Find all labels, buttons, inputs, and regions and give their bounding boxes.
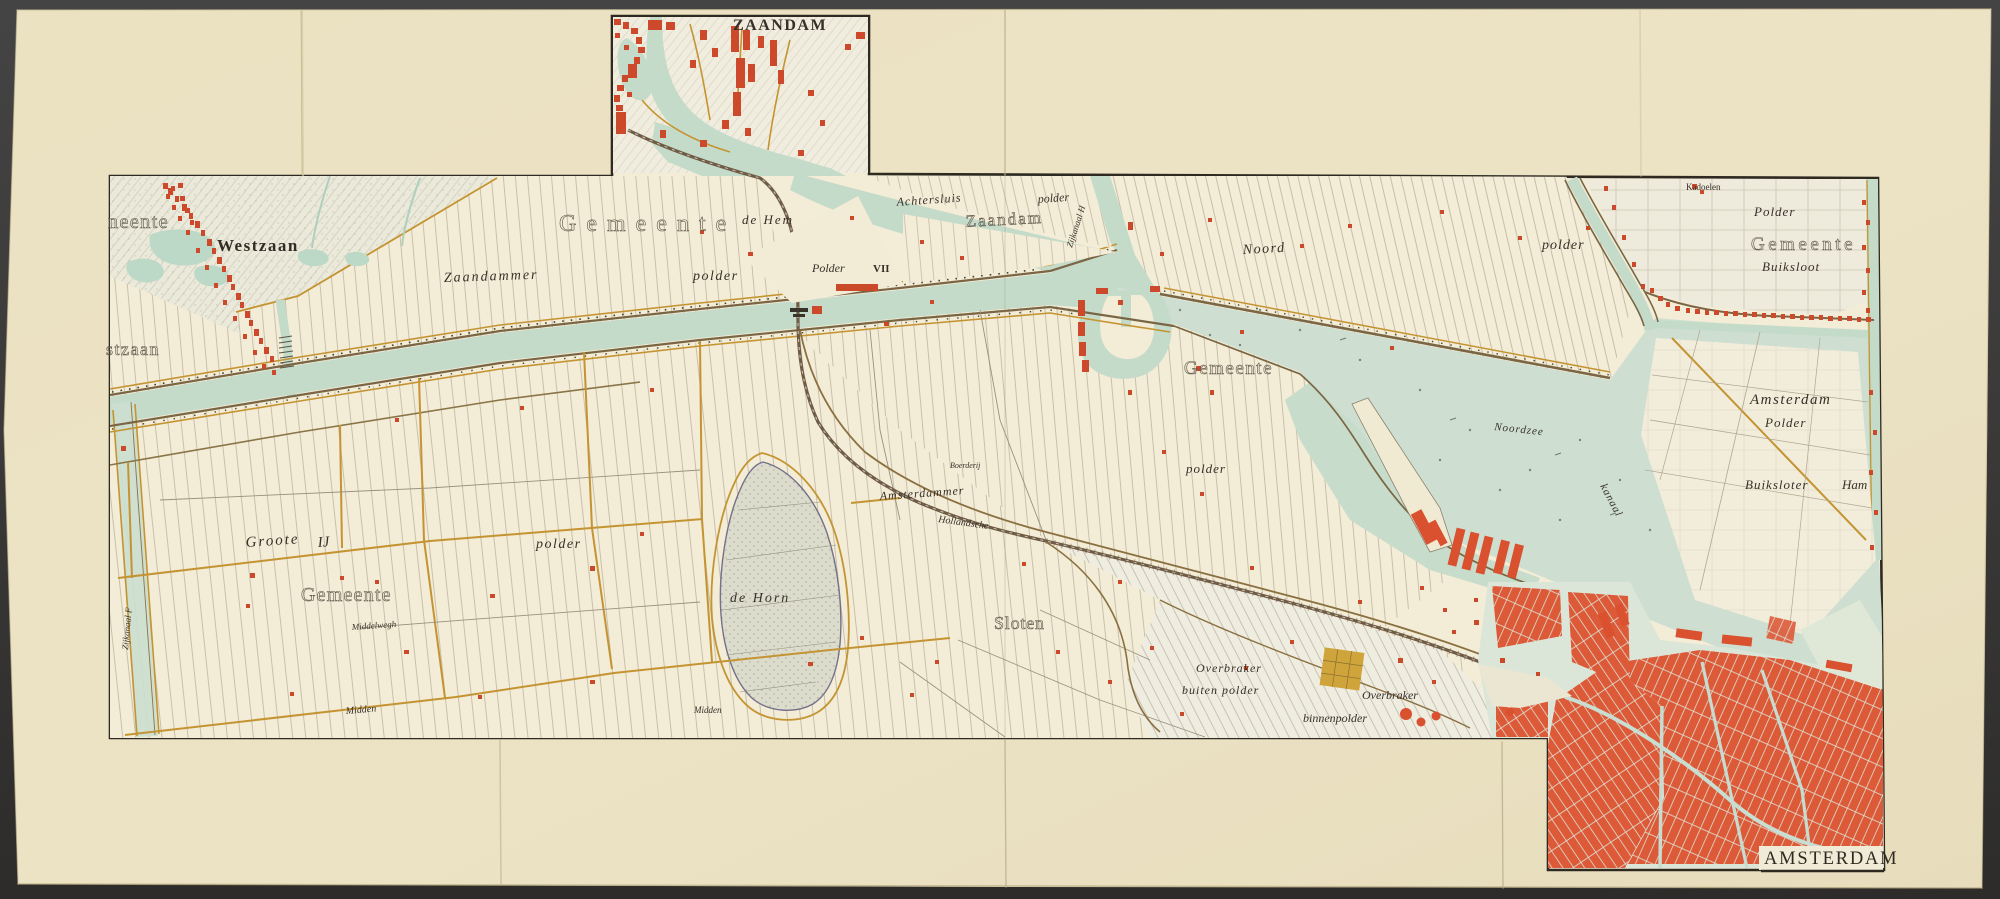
svg-text:Noord: Noord [1241,241,1286,258]
svg-text:polder: polder [1036,190,1070,206]
svg-text:Amsterdam: Amsterdam [1749,392,1831,408]
svg-text:Polder: Polder [811,261,845,275]
svg-text:Gemeente: Gemeente [301,584,392,606]
svg-text:polder: polder [1541,238,1585,253]
svg-text:Westzaan: Westzaan [217,236,299,255]
svg-text:de Hem: de Hem [742,212,794,227]
svg-text:buiten polder: buiten polder [1182,683,1259,697]
svg-text:Gemeente: Gemeente [559,211,736,237]
svg-text:Gemeente: Gemeente [1751,234,1856,255]
svg-text:Buiksloot: Buiksloot [1762,259,1820,274]
svg-text:Ham: Ham [1841,477,1867,492]
svg-text:Polder: Polder [1764,415,1806,430]
svg-text:ZAANDAM: ZAANDAM [733,17,827,34]
svg-text:AMSTERDAM: AMSTERDAM [1764,849,1898,869]
svg-text:stzaan: stzaan [106,339,160,359]
svg-text:Boerderij: Boerderij [950,461,981,470]
svg-text:Overbraker: Overbraker [1196,661,1262,675]
svg-text:Sloten: Sloten [994,613,1045,633]
svg-text:Buiksloter: Buiksloter [1745,477,1808,492]
svg-text:Zaandam: Zaandam [965,208,1043,231]
svg-text:neente: neente [108,211,169,233]
svg-text:polder: polder [535,537,582,552]
svg-text:Polder: Polder [1753,204,1795,219]
svg-text:de Horn: de Horn [730,591,790,606]
svg-text:Midden: Midden [693,705,722,715]
svg-text:Kadoelen: Kadoelen [1686,182,1721,192]
svg-text:polder: polder [692,269,739,284]
svg-text:Overbraker: Overbraker [1362,688,1418,702]
svg-text:VII: VII [873,263,890,275]
svg-text:binnenpolder: binnenpolder [1303,711,1367,725]
svg-text:polder: polder [1185,461,1226,476]
svg-text:Gemeente: Gemeente [1184,358,1273,379]
